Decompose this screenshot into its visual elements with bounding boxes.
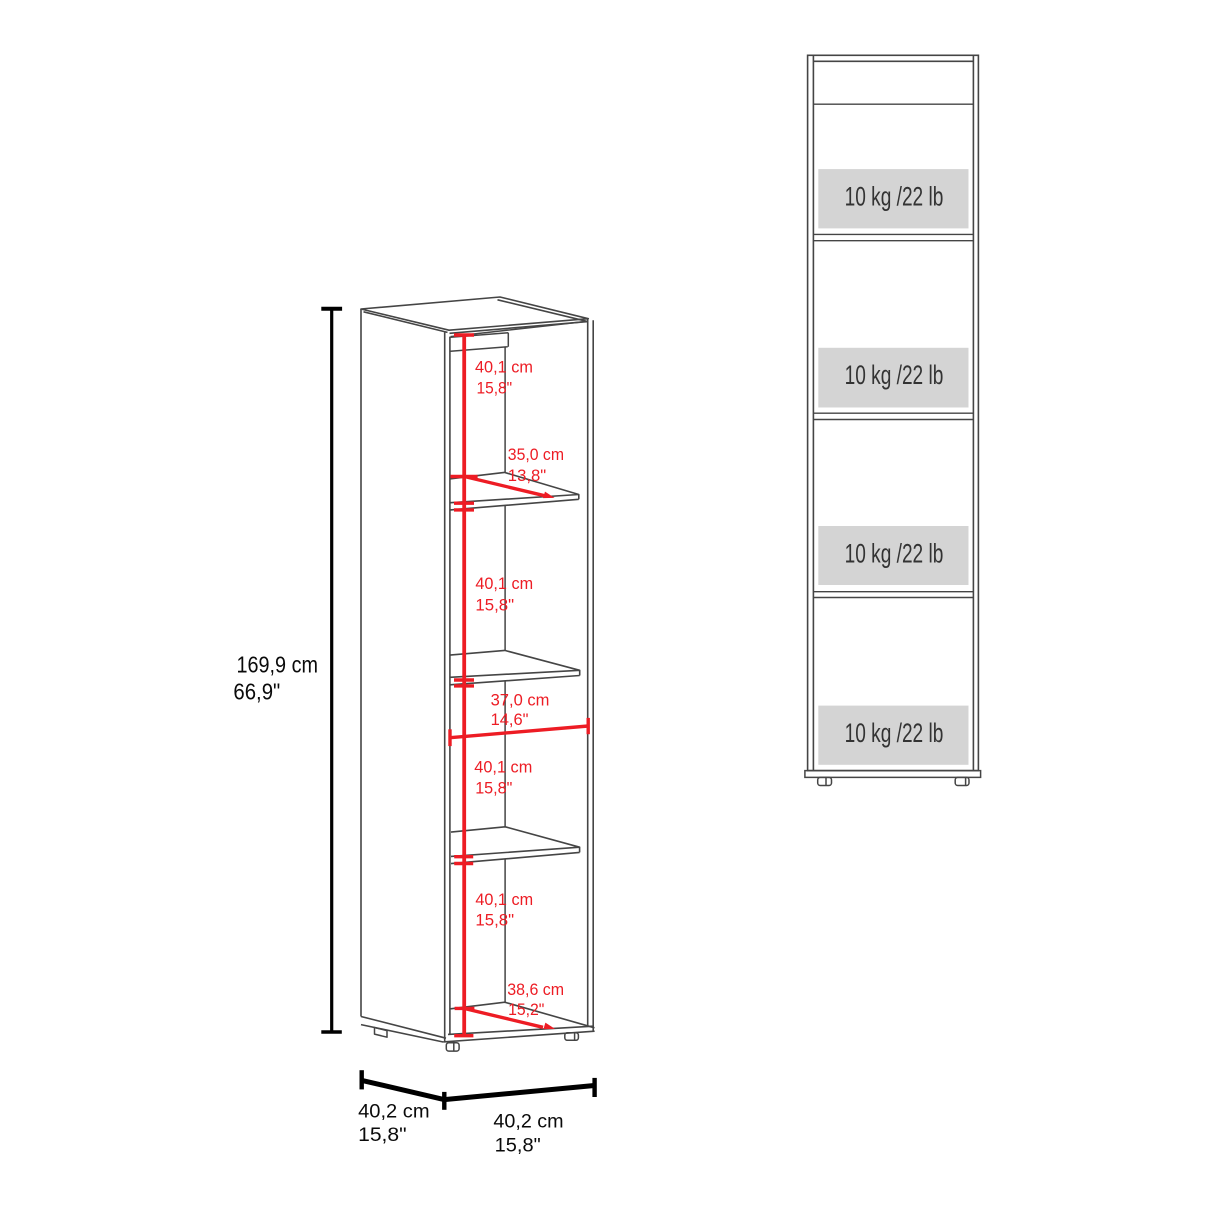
svg-text:40,2 cm: 40,2 cm <box>358 1101 430 1123</box>
svg-text:15,8": 15,8" <box>477 379 513 398</box>
svg-text:169,9 cm: 169,9 cm <box>237 652 319 678</box>
svg-text:13,8": 13,8" <box>508 466 546 485</box>
svg-text:66,9": 66,9" <box>233 679 280 705</box>
svg-text:35,0 cm: 35,0 cm <box>508 445 564 464</box>
svg-text:40,1 cm: 40,1 cm <box>475 357 533 376</box>
svg-text:40,2 cm: 40,2 cm <box>493 1111 563 1133</box>
svg-text:15,8": 15,8" <box>358 1124 407 1146</box>
svg-text:37,0 cm: 37,0 cm <box>491 690 550 709</box>
svg-text:15,8": 15,8" <box>475 596 514 615</box>
svg-text:10 kg /22 lb: 10 kg /22 lb <box>845 360 944 390</box>
svg-text:10 kg /22 lb: 10 kg /22 lb <box>845 718 944 748</box>
svg-text:15,8": 15,8" <box>475 911 514 930</box>
svg-text:40,1 cm: 40,1 cm <box>475 574 533 593</box>
svg-text:15,2": 15,2" <box>508 1000 544 1019</box>
svg-text:40,1 cm: 40,1 cm <box>475 890 533 909</box>
svg-text:40,1 cm: 40,1 cm <box>474 758 532 777</box>
svg-text:38,6 cm: 38,6 cm <box>507 980 564 999</box>
svg-text:15,8": 15,8" <box>475 779 512 798</box>
svg-text:15,8": 15,8" <box>495 1135 541 1157</box>
svg-text:10 kg /22 lb: 10 kg /22 lb <box>845 182 944 212</box>
svg-text:14,6": 14,6" <box>491 710 529 729</box>
svg-text:10 kg /22 lb: 10 kg /22 lb <box>845 538 944 568</box>
